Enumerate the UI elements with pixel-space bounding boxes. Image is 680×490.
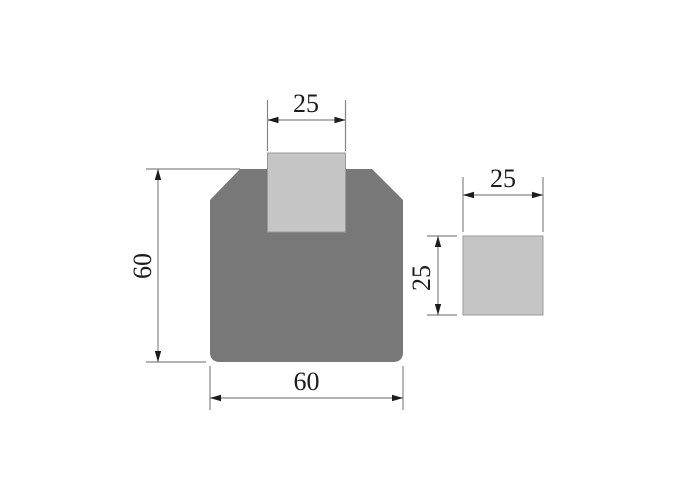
dim-label-insert-width: 25 [490,164,516,193]
dim-slot-width: 25 [268,89,346,151]
dim-label-body-width: 60 [294,367,320,396]
dim-label-body-height: 60 [128,253,157,279]
dim-body-width: 60 [210,366,403,410]
slot-insert-shape [268,153,346,232]
drawing-canvas: 25 60 60 25 25 [0,0,680,490]
dim-insert-height: 25 [407,236,457,315]
dim-label-insert-height: 25 [407,265,436,291]
dim-insert-width: 25 [463,164,543,232]
technical-drawing: 25 60 60 25 25 [0,0,680,490]
dim-label-slot-width: 25 [293,89,319,118]
insert-square-shape [463,236,543,315]
